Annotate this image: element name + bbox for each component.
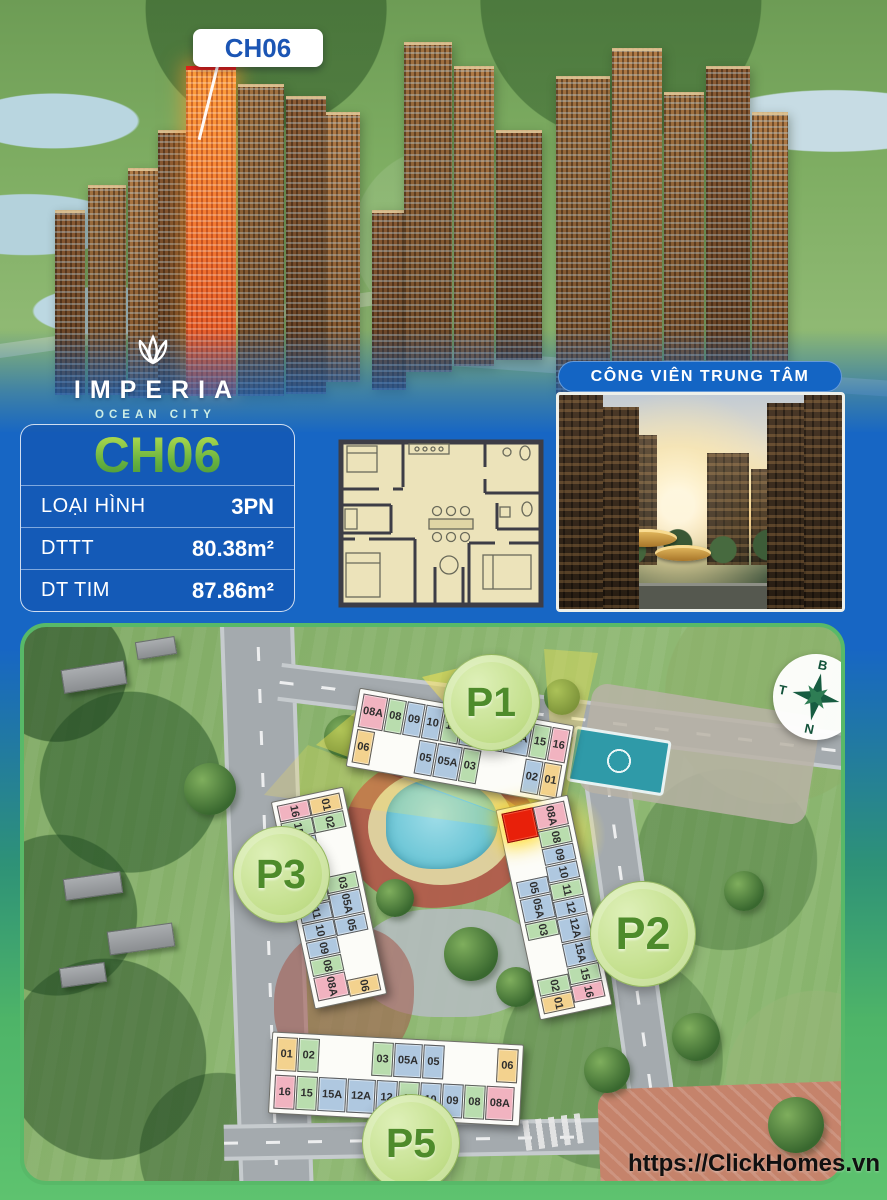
tree: [444, 927, 498, 981]
tree: [184, 763, 236, 815]
unit-cell-01: 01: [275, 1037, 298, 1072]
tower: [404, 42, 452, 372]
unit-cell-label: 09: [316, 941, 330, 955]
unit-cell-label: 16: [278, 1086, 291, 1099]
tree: [724, 871, 764, 911]
tree: [544, 679, 580, 715]
unit-cell-label: 15A: [322, 1088, 343, 1101]
unit-cell-label: 08A: [323, 975, 339, 997]
unit-cell-16: 16: [273, 1075, 296, 1110]
unit-cell-label: 08A: [543, 804, 559, 826]
unit-cell-label: 08A: [489, 1097, 510, 1110]
badge-p2: P2: [590, 881, 696, 987]
unit-cell-label: 15: [577, 966, 591, 980]
badge-p1: P1: [443, 654, 540, 751]
unit-cell-label: 01: [280, 1048, 293, 1061]
badge-p5: P5: [362, 1094, 460, 1185]
unit-cell-label: 08: [388, 709, 402, 723]
unit-cell-label: 08A: [362, 705, 384, 720]
unit-cell-label: 01: [318, 797, 332, 811]
unit-cell-label: 09: [446, 1095, 459, 1108]
unit-callout-label: CH06: [193, 29, 323, 67]
unit-cell-label: 02: [525, 770, 539, 784]
compass-south-label: N: [803, 720, 815, 737]
unit-cell-label: 10: [312, 923, 326, 937]
foreground-tower-right: [767, 403, 804, 612]
unit-cell-label: 16: [287, 804, 301, 818]
foreground-tower-left: [603, 407, 639, 612]
slab-gap: [319, 1039, 372, 1076]
unit-cell-label: 05: [418, 751, 432, 765]
lotus-icon: [131, 330, 175, 370]
unit-type-label: LOẠI HÌNH: [41, 495, 146, 518]
unit-cell-label: 15A: [572, 941, 588, 963]
unit-cell-label: 08: [548, 829, 562, 843]
slab-gap: [370, 732, 418, 773]
unit-cell-label: 05A: [339, 892, 355, 914]
unit-cell-label: 12A: [351, 1090, 372, 1103]
unit-code-title: CH06: [21, 425, 294, 485]
unit-type-value: 3PN: [231, 494, 274, 520]
unit-cell-label: 02: [547, 977, 561, 991]
unit-cell-06: 06: [496, 1048, 519, 1083]
foreground-tower-left: [556, 392, 603, 612]
central-park-photo: [556, 392, 845, 612]
net-area-label: DTTT: [41, 537, 94, 560]
logo-name: IMPERIA: [48, 376, 258, 405]
unit-cell-label: 12: [563, 899, 577, 913]
villa-roof: [59, 962, 107, 988]
villa-roof: [63, 871, 123, 901]
badge-p3: P3: [233, 826, 330, 923]
park-banner: CÔNG VIÊN TRUNG TÂM: [558, 361, 842, 392]
villa-roof: [135, 636, 177, 660]
villa-roof: [61, 660, 128, 694]
unit-cell-label: 01: [551, 995, 565, 1009]
unit-cell-label: 09: [407, 713, 421, 727]
unit-info-card: CH06 LOẠI HÌNH 3PN DTTT 80.38m² DT TIM 8…: [20, 424, 295, 612]
unit-cell-label: 03: [535, 922, 549, 936]
unit-cell-08A: 08A: [313, 971, 349, 1001]
unit-cell-label: 03: [335, 875, 349, 889]
unit-cell-label: 05: [526, 880, 540, 894]
tree: [768, 1097, 824, 1153]
unit-cell-12A: 12A: [346, 1078, 376, 1113]
unit-cell-05A: 05A: [393, 1043, 423, 1078]
unit-cell-label: 16: [552, 738, 566, 752]
unit-cell-label: 08: [468, 1096, 481, 1109]
unit-cell-label: 15: [300, 1087, 313, 1100]
gross-area-label: DT TIM: [41, 579, 110, 602]
unit-cell-03: 03: [371, 1042, 394, 1077]
unit-cell-label: 06: [357, 978, 371, 992]
unit-cell-label: 10: [556, 864, 570, 878]
unit-cell-05: 05: [422, 1044, 445, 1079]
logo-subtitle: OCEAN CITY: [48, 409, 258, 421]
unit-cell-label: 05: [427, 1056, 440, 1069]
unit-cell-label: 15: [533, 735, 547, 749]
unit-cell-label: 11: [559, 882, 573, 896]
unit-cell-15: 15: [295, 1076, 318, 1111]
gross-area-value: 87.86m²: [192, 578, 274, 604]
unit-cell-label: 05: [344, 917, 358, 931]
unit-cell-label: 02: [322, 815, 336, 829]
gold-canopy: [655, 545, 711, 561]
brochure-page: CH06 IMPERIA OCEAN CITY CH06 LOẠI HÌNH 3…: [0, 0, 887, 1200]
unit-cell-label: 02: [302, 1049, 315, 1062]
unit-cell-label: 09: [552, 847, 566, 861]
unit-cell-label: 06: [356, 740, 370, 754]
net-area-value: 80.38m²: [192, 536, 274, 562]
tree: [672, 1013, 720, 1061]
tower: [496, 130, 542, 360]
slab-gap: [444, 1046, 497, 1083]
unit-cell-02: 02: [297, 1038, 320, 1073]
tower: [454, 66, 494, 366]
unit-cell-label: 10: [426, 716, 440, 730]
unit-cell-label: 08: [320, 958, 334, 972]
slab-gap: [477, 751, 525, 792]
gross-area-row: DT TIM 87.86m²: [21, 569, 294, 611]
tree: [376, 879, 414, 917]
unit-cell-label: 03: [463, 759, 477, 773]
unit-cell-label: 05A: [530, 897, 546, 919]
net-area-row: DTTT 80.38m²: [21, 527, 294, 569]
website-url[interactable]: https://ClickHomes.vn: [628, 1150, 883, 1178]
unit-cell-label: 03: [376, 1053, 389, 1066]
foreground-tower-right: [804, 392, 845, 612]
unit-cell-label: 06: [501, 1059, 514, 1072]
floor-plan: [337, 437, 545, 611]
unit-cell-label: 12A: [567, 917, 583, 939]
unit-cell-label: 16: [581, 983, 595, 997]
villa-roof: [107, 923, 176, 956]
imperia-logo: IMPERIA OCEAN CITY: [48, 330, 258, 421]
unit-type-row: LOẠI HÌNH 3PN: [21, 485, 294, 527]
unit-cell-label: 05A: [437, 754, 459, 769]
compass-east-label: Đ: [842, 696, 845, 713]
unit-cell-15A: 15A: [317, 1077, 347, 1112]
unit-cell-label: 05A: [398, 1054, 419, 1067]
site-plan-map: 08A080910111212A15A1516060505A0302011615…: [20, 623, 845, 1185]
tree: [584, 1047, 630, 1093]
unit-cell-label: 01: [543, 773, 557, 787]
unit-cell-08: 08: [463, 1085, 486, 1120]
unit-cell-08A: 08A: [485, 1086, 515, 1121]
